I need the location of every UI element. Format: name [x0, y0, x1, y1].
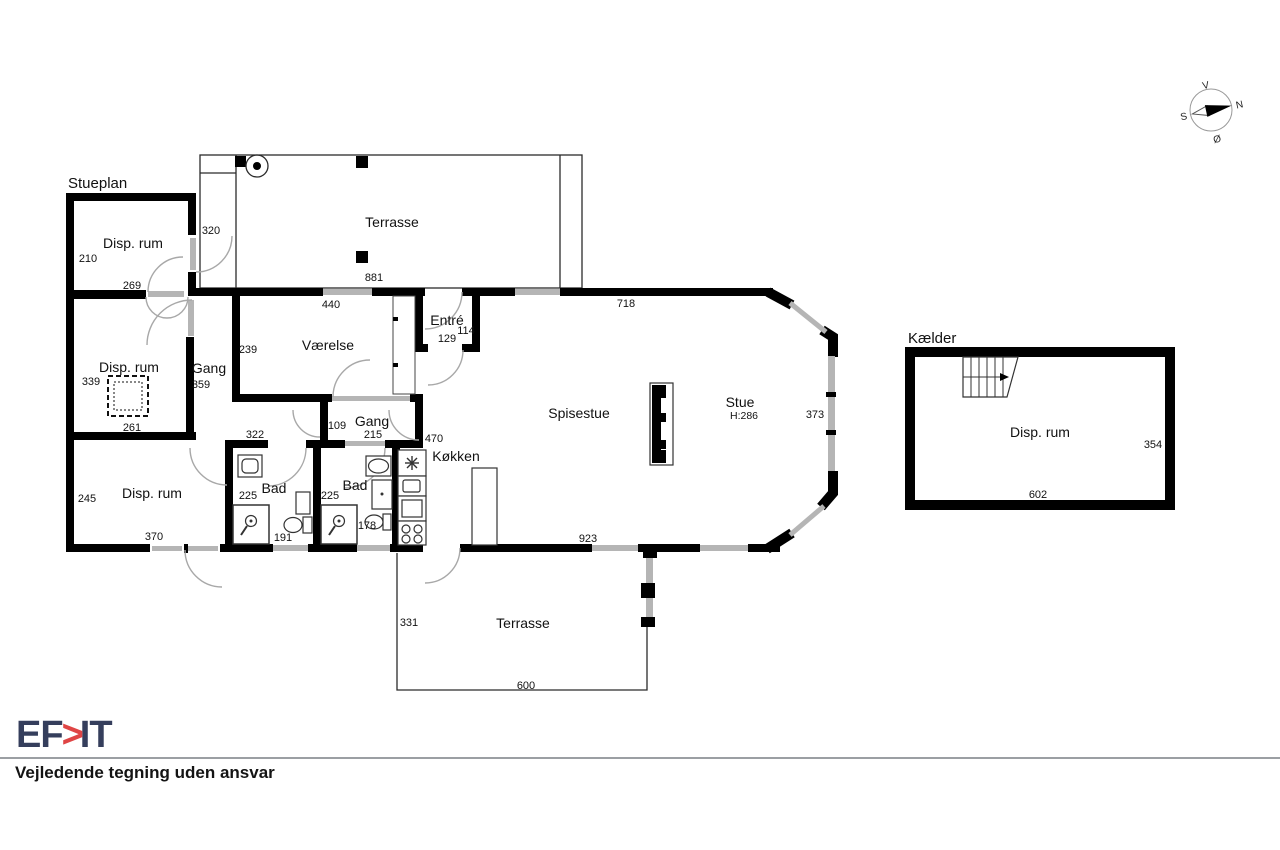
dim-373: 373	[806, 409, 824, 421]
logo-text-left: EF	[16, 714, 63, 756]
logo-text-right: IT	[80, 714, 112, 756]
dim-322: 322	[246, 429, 264, 441]
compass-west-label: V	[1201, 80, 1210, 92]
terrace-post-icon	[356, 156, 368, 168]
dim-320: 320	[202, 225, 220, 237]
dim-470: 470	[425, 433, 443, 445]
sink-icon	[242, 459, 258, 473]
dim-339: 339	[82, 376, 100, 388]
room-label-disp-nw: Disp. rum	[103, 235, 163, 251]
staircase-icon	[963, 357, 1018, 397]
room-label-terrasse-s: Terrasse	[496, 615, 550, 631]
dim-114: 114	[457, 325, 475, 337]
dim-359: 359	[192, 379, 210, 391]
dim-225-left: 225	[239, 490, 257, 502]
dim-602: 602	[1029, 489, 1047, 501]
efkt-logo: EF>IT	[16, 716, 112, 754]
compass-icon: V N Ø S	[1174, 74, 1250, 152]
dim-261: 261	[123, 422, 141, 434]
dim-239: 239	[239, 344, 257, 356]
dim-178: 178	[358, 520, 376, 532]
closet-strip	[393, 296, 415, 394]
dim-225-right: 225	[321, 490, 339, 502]
terrace-post-icon	[356, 251, 368, 263]
dim-370: 370	[145, 531, 163, 543]
room-label-vaerelse: Værelse	[302, 337, 354, 353]
dim-718: 718	[617, 298, 635, 310]
room-label-stue: Stue	[726, 394, 755, 410]
walls	[66, 193, 833, 627]
dim-215: 215	[364, 429, 382, 441]
dim-881: 881	[365, 272, 383, 284]
dim-440: 440	[322, 299, 340, 311]
room-label-spisestue: Spisestue	[548, 405, 610, 421]
floorplan-drawing: V N Ø S Stueplan Kælder Disp. rum Disp. …	[0, 0, 1280, 850]
room-label-bad-r: Bad	[343, 477, 368, 493]
dim-354: 354	[1144, 439, 1162, 451]
dim-600: 600	[517, 680, 535, 692]
compass-east-label: Ø	[1212, 134, 1222, 146]
room-label-kaelder-disp: Disp. rum	[1010, 424, 1070, 440]
footer-disclaimer: Vejledende tegning uden ansvar	[15, 763, 275, 783]
kitchen-island	[472, 468, 497, 545]
labels: Stueplan Kælder Disp. rum Disp. rum Disp…	[68, 175, 1162, 692]
dim-269: 269	[123, 280, 141, 292]
logo-chevron-icon: >	[62, 716, 83, 755]
toilet-icon	[284, 518, 302, 533]
dim-331: 331	[400, 617, 418, 629]
dim-245: 245	[78, 493, 96, 505]
room-label-disp-w: Disp. rum	[99, 359, 159, 375]
room-label-koekken: Køkken	[432, 448, 479, 464]
room-label-terrasse-n: Terrasse	[365, 214, 419, 230]
tub-icon	[369, 459, 389, 473]
room-label-bad-l: Bad	[262, 480, 287, 496]
room-label-disp-sw: Disp. rum	[122, 485, 182, 501]
dim-191: 191	[274, 532, 292, 544]
floorplan-page: V N Ø S Stueplan Kælder Disp. rum Disp. …	[0, 0, 1280, 850]
dim-109: 109	[328, 420, 346, 432]
room-label-gang-w: Gang	[192, 360, 226, 376]
fireplace-icon	[650, 383, 673, 465]
compass-north-label: N	[1235, 99, 1244, 111]
room-label-gang-m: Gang	[355, 413, 389, 429]
terrace-post-icon	[235, 156, 246, 167]
kitchen-fixtures	[398, 450, 497, 545]
dim-129: 129	[438, 333, 456, 345]
stueplan-title: Stueplan	[68, 175, 127, 192]
room-height-stue: H:286	[730, 410, 758, 422]
compass-south-label: S	[1180, 111, 1189, 123]
kaelder-title: Kælder	[908, 330, 956, 347]
footer-divider	[0, 757, 1280, 759]
dim-923: 923	[579, 533, 597, 545]
dim-210: 210	[79, 253, 97, 265]
